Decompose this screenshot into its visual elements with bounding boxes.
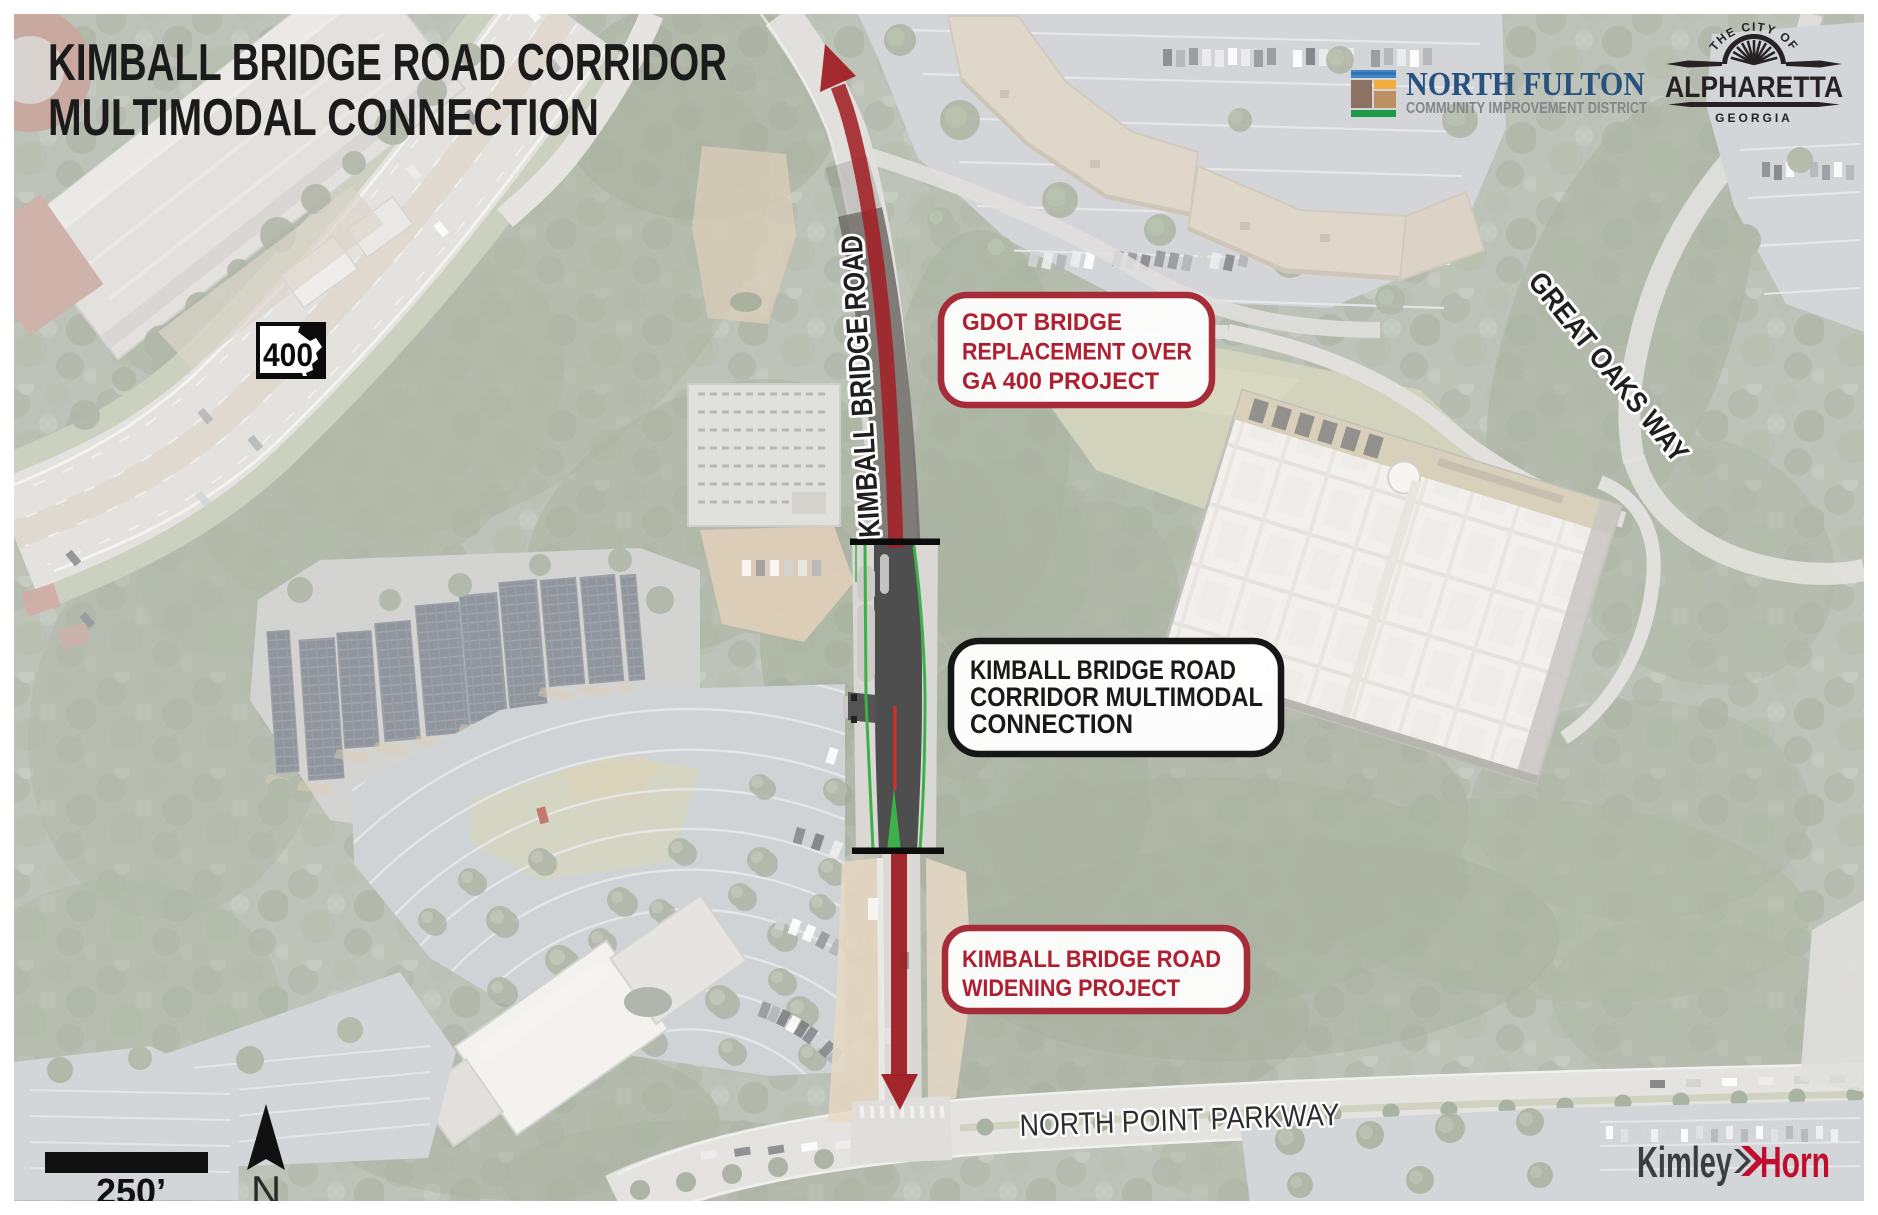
svg-text:400: 400: [263, 337, 313, 373]
svg-text:KIMBALL BRIDGE ROAD CORRIDOR: KIMBALL BRIDGE ROAD CORRIDOR: [48, 34, 727, 92]
svg-text:KIMBALL BRIDGE ROAD: KIMBALL BRIDGE ROAD: [962, 946, 1221, 973]
svg-text:Kimley: Kimley: [1637, 1138, 1732, 1187]
svg-text:REPLACEMENT OVER: REPLACEMENT OVER: [962, 339, 1192, 366]
svg-text:Horn: Horn: [1760, 1138, 1830, 1187]
svg-text:GEORGIA: GEORGIA: [1715, 111, 1793, 125]
svg-text:GDOT BRIDGE: GDOT BRIDGE: [962, 309, 1122, 336]
svg-text:COMMUNITY IMPROVEMENT DISTRICT: COMMUNITY IMPROVEMENT DISTRICT: [1406, 100, 1647, 117]
svg-text:NORTH FULTON: NORTH FULTON: [1406, 66, 1645, 103]
svg-text:CORRIDOR MULTIMODAL: CORRIDOR MULTIMODAL: [970, 682, 1263, 712]
svg-text:ALPHARETTA: ALPHARETTA: [1665, 71, 1843, 104]
svg-text:KIMBALL BRIDGE ROAD: KIMBALL BRIDGE ROAD: [970, 655, 1236, 685]
svg-text:MULTIMODAL CONNECTION: MULTIMODAL CONNECTION: [48, 89, 599, 147]
svg-text:GA 400 PROJECT: GA 400 PROJECT: [962, 368, 1159, 395]
svg-text:CONNECTION: CONNECTION: [970, 709, 1133, 739]
svg-text:WIDENING PROJECT: WIDENING PROJECT: [962, 975, 1180, 1002]
